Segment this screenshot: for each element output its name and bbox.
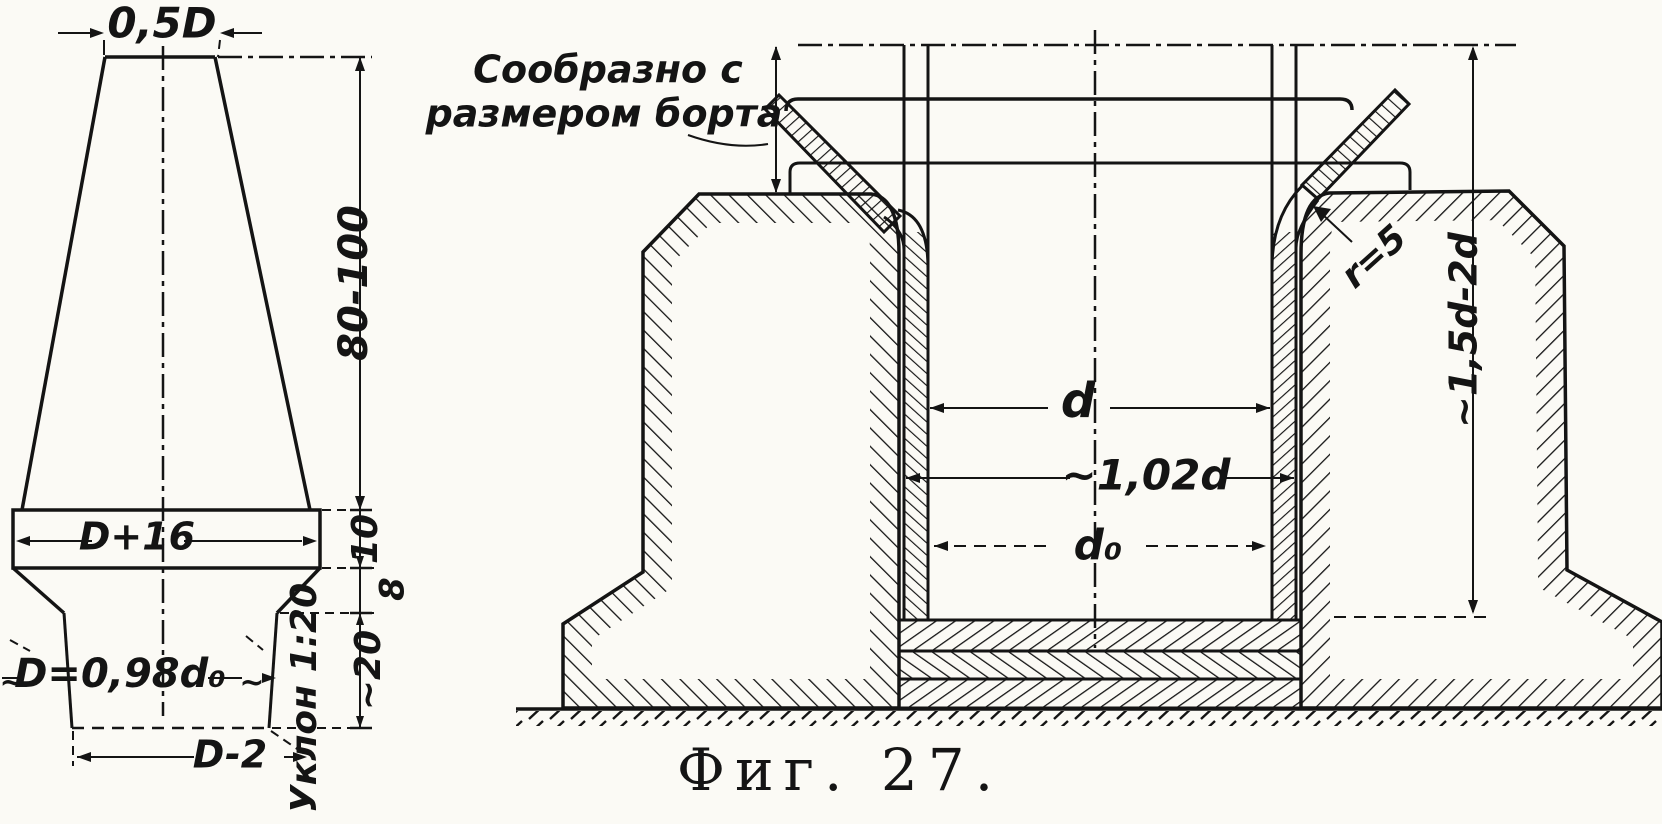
dim-label-cone-height: 80-100 <box>331 205 377 361</box>
ground-hatch <box>516 711 1662 726</box>
dim-label-band-height: 10 <box>345 514 386 564</box>
tube-wall-right-hatch <box>1273 232 1295 620</box>
spacer-plate-3 <box>899 679 1301 708</box>
punch-shank-right <box>269 613 277 728</box>
tube-wall-left-hatch <box>905 232 927 620</box>
dim-bore-diameter: ~1,02d <box>906 451 1294 500</box>
left-die-block-hatching <box>563 194 899 708</box>
spacer-plate-1 <box>899 620 1301 651</box>
dim-label-shank-height: ~20 <box>348 630 389 710</box>
dim-label-chamfer-height: 8 <box>373 577 413 601</box>
dim-label-inner-diameter: d <box>1061 373 1096 429</box>
dim-band-width: D+16 <box>16 515 317 559</box>
dim-base-diameter: d₀ <box>934 521 1266 570</box>
corner-radius-label: r=5 <box>1333 217 1415 296</box>
punch-cone-left-side <box>22 57 105 510</box>
punch-cone-right-side <box>215 57 310 510</box>
dim-top-width: 0,5D <box>58 0 262 57</box>
dim-bottom-width: D-2 <box>73 731 307 777</box>
dim-label-depth: ~1,5d-2d <box>1442 231 1486 428</box>
punch-chamfer-left <box>13 568 64 613</box>
spacer-plate-2 <box>899 651 1301 679</box>
dim-label-top-width: 0,5D <box>107 0 216 48</box>
right-view-die-section: Сообразно с размером борта d ~1,02d <box>425 30 1662 726</box>
dim-label-bore-diameter: ~1,02d <box>1062 451 1232 500</box>
dim-label-base-diameter: d₀ <box>1074 521 1122 570</box>
spacer-plates <box>899 620 1301 708</box>
dim-label-bottom-width: D-2 <box>193 733 267 777</box>
punch-face-line <box>786 99 1352 111</box>
figure-caption: Фиг. 27. <box>677 736 1003 804</box>
dim-label-shank-diameter: D=0,98d₀ <box>14 651 226 697</box>
flange-strip-right <box>1302 90 1409 199</box>
approx-tilde-right: ~ <box>239 666 264 701</box>
taper-label: Уклон 1:20 <box>284 583 325 813</box>
note-line2: размером борта <box>425 92 783 136</box>
left-die-block-outline <box>563 194 899 708</box>
scanned-drawing-page: 0,5D 80-100 10 8 ~20 D+16 <box>0 0 1662 824</box>
figure-27-drawing: 0,5D 80-100 10 8 ~20 D+16 <box>0 0 1662 824</box>
dim-shank-diameter: ~ D=0,98d₀ ~ <box>0 636 276 701</box>
flange-note: Сообразно с размером борта <box>425 48 783 146</box>
dim-label-band-width: D+16 <box>79 515 195 559</box>
dim-inner-diameter: d <box>930 373 1270 429</box>
left-view-cone-punch: 0,5D 80-100 10 8 ~20 D+16 <box>0 0 413 813</box>
note-line1: Сообразно с <box>473 48 743 92</box>
